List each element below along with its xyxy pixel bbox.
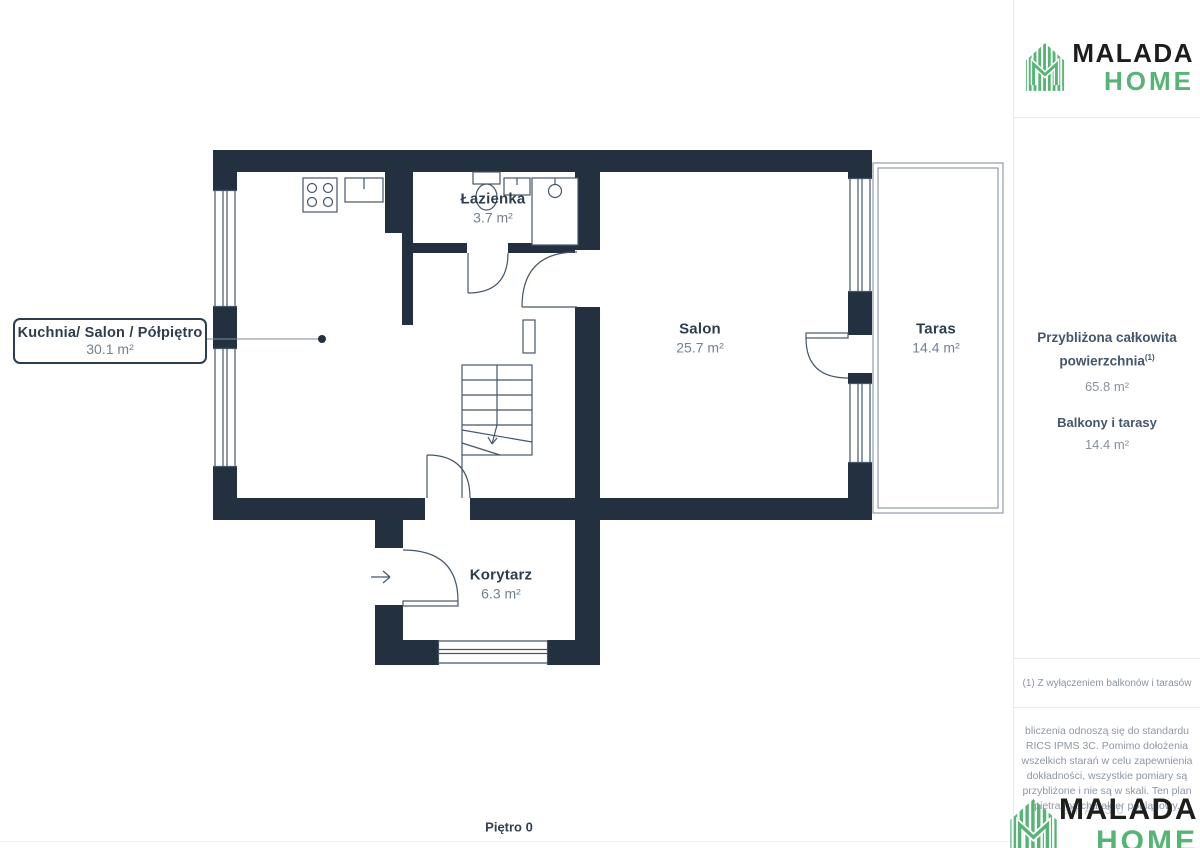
stairs-icon <box>462 365 532 498</box>
brand-logo: MALADA HOME <box>1024 40 1194 94</box>
room-name: Salon <box>676 321 723 338</box>
door-terrace <box>806 333 848 378</box>
disclaimer-line: bliczenia odnoszą się do standardu <box>1014 724 1200 739</box>
room-area: 6.3 m² <box>470 586 532 602</box>
area-summary: Przybliżona całkowita powierzchnia(1) 65… <box>1014 328 1200 452</box>
floor-plan <box>0 0 1013 848</box>
total-area-title-text: Przybliżona całkowita powierzchnia <box>1037 330 1177 369</box>
page-divider <box>0 841 1013 842</box>
doors <box>371 252 848 606</box>
room-name: Taras <box>912 321 959 338</box>
door-hall-salon <box>522 252 577 353</box>
room-area: 25.7 m² <box>676 340 723 356</box>
total-area-value: 65.8 m² <box>1014 379 1200 394</box>
malada-house-icon <box>1008 795 1059 848</box>
door-bathroom <box>468 253 508 293</box>
logo-brand-text: MALADA <box>1059 795 1198 825</box>
disclaimer-line: dokładności, wszystkie pomiary są <box>1014 769 1200 784</box>
room-area: 30.1 m² <box>86 341 133 357</box>
disclaimer-line: wszelkich starań w celu zapewnienia <box>1014 754 1200 769</box>
window-left-upper <box>213 190 237 307</box>
sidebar-divider <box>1014 117 1200 118</box>
kitchen-sink-icon <box>345 178 383 202</box>
floor-level-label: Piętro 0 <box>485 820 533 835</box>
brand-logo-footer: MALADA HOME <box>1008 795 1198 848</box>
floorplan-page: Kuchnia/ Salon / Półpiętro 30.1 m² Łazie… <box>0 0 1200 848</box>
window-left-lower <box>213 348 237 467</box>
room-label-kuchnia: Kuchnia/ Salon / Półpiętro 30.1 m² <box>13 318 207 364</box>
room-label-lazienka: Łazienka 3.7 m² <box>461 191 526 226</box>
room-area: 3.7 m² <box>461 210 526 226</box>
window-hall-bottom <box>438 640 548 665</box>
door-room-hall <box>427 455 470 498</box>
room-label-salon: Salon 25.7 m² <box>676 321 723 356</box>
window-right-lower <box>848 383 872 463</box>
shower-icon <box>532 178 578 245</box>
footnote-text: (1) Z wyłączeniem balkonów i tarasów <box>1014 678 1200 689</box>
room-name: Łazienka <box>461 191 526 208</box>
window-right-upper <box>848 178 872 292</box>
logo-brand-text: MALADA <box>1072 40 1194 66</box>
sidebar-divider <box>1014 658 1200 659</box>
room-label-korytarz: Korytarz 6.3 m² <box>470 567 532 602</box>
room-name: Korytarz <box>470 567 532 584</box>
stove-icon <box>303 178 337 212</box>
room-label-taras: Taras 14.4 m² <box>912 321 959 356</box>
room-area: 14.4 m² <box>912 340 959 356</box>
info-sidebar: MALADA HOME Przybliżona całkowita powier… <box>1013 0 1200 848</box>
sidebar-divider <box>1014 707 1200 708</box>
door-entry <box>403 550 458 606</box>
balconies-value: 14.4 m² <box>1014 437 1200 452</box>
footnote-marker: (1) <box>1145 353 1155 362</box>
logo-home-text: HOME <box>1096 827 1198 848</box>
logo-home-text: HOME <box>1104 68 1194 94</box>
entry-arrow-icon <box>371 571 390 583</box>
disclaimer-line: RICS IPMS 3C. Pomimo dołożenia <box>1014 739 1200 754</box>
total-area-title: Przybliżona całkowita powierzchnia(1) <box>1027 328 1187 372</box>
malada-house-icon <box>1024 40 1066 94</box>
room-name: Kuchnia/ Salon / Półpiętro <box>18 325 203 341</box>
balconies-label: Balkony i tarasy <box>1014 415 1200 430</box>
